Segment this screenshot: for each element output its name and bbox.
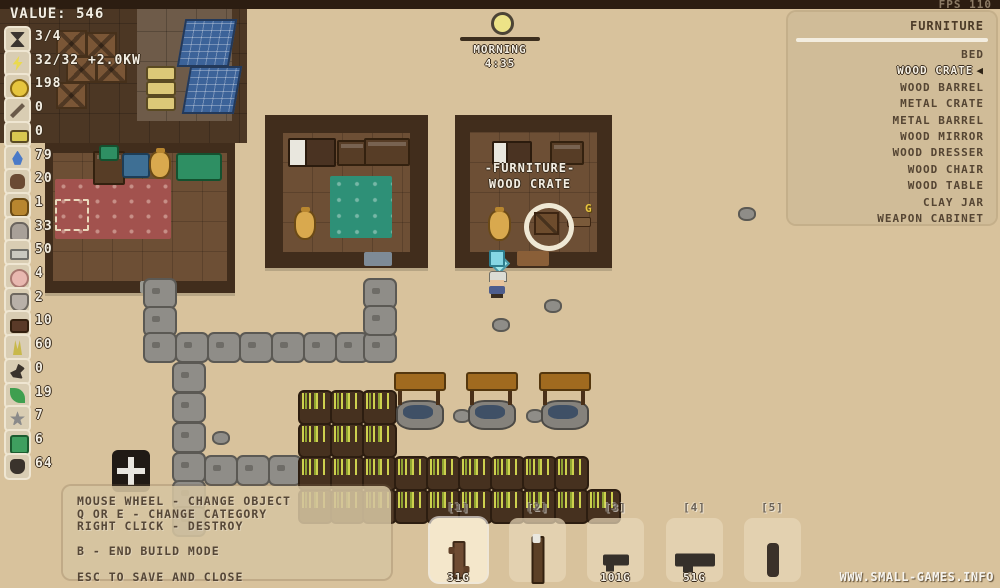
help-line: B - END BUILD MODE [77, 544, 220, 557]
door-mat[interactable] [517, 251, 549, 266]
build-menu-item[interactable]: METAL CRATE [794, 97, 984, 113]
crop-plot[interactable] [394, 489, 429, 524]
crop-plot[interactable] [458, 456, 493, 491]
build-menu-item[interactable]: WOOD TABLE [794, 179, 984, 195]
solar-panel[interactable] [177, 19, 237, 67]
hotbar-slot-key: [3] [587, 501, 644, 514]
resource-row: 4 [4, 263, 154, 287]
crop-plot[interactable] [330, 423, 365, 458]
bed-icon [10, 319, 29, 333]
door-mat[interactable] [364, 252, 392, 266]
battery-icon [10, 130, 29, 143]
menu-divider [796, 38, 988, 42]
stone-path-tile[interactable] [175, 332, 209, 363]
resource-value: 32/32 +2.0KW [35, 53, 141, 68]
resource-value: 3/4 [35, 29, 61, 44]
power-plug-icon [489, 250, 505, 267]
resource-row: 6 [4, 429, 154, 453]
build-menu-item-label: METAL BARREL [893, 114, 984, 127]
resource-row: 198 [4, 73, 154, 97]
hotbar-slot-3[interactable]: [3]101G [587, 518, 644, 582]
resource-row: 64 [4, 453, 154, 477]
wheat-icon [10, 340, 25, 355]
dresser[interactable] [364, 138, 410, 166]
hotbar-slot-2[interactable]: [2] [509, 518, 566, 582]
egg-icon [10, 269, 29, 288]
build-menu-item[interactable]: WEAPON CABINET [794, 212, 984, 228]
hotbar-slot-price: 51G [666, 571, 723, 584]
pebble [212, 431, 230, 445]
stone-path-tile[interactable] [207, 332, 241, 363]
time-period: MORNING [440, 43, 560, 56]
build-menu-item-label: WOOD TABLE [908, 179, 984, 192]
resource-value: 0 [35, 100, 44, 115]
build-menu-item-label: WOOD CHAIR [908, 163, 984, 176]
time-progress-line [460, 37, 540, 41]
build-menu-item[interactable]: METAL BARREL [794, 114, 984, 130]
stone-path-tile[interactable] [363, 332, 397, 363]
resource-value: 19 [35, 385, 53, 400]
help-line: MOUSE WHEEL - CHANGE OBJECT [77, 494, 291, 507]
stone-path-tile[interactable] [172, 422, 206, 453]
solar-panel[interactable] [182, 66, 242, 114]
dirt-icon [10, 174, 25, 189]
water-well[interactable] [541, 372, 589, 432]
build-menu-item[interactable]: WOOD DRESSER [794, 146, 984, 162]
crop-plot[interactable] [554, 456, 589, 491]
stone-icon [10, 222, 29, 241]
build-menu-item-label: WOOD BARREL [900, 81, 984, 94]
stone-path-tile[interactable] [303, 332, 337, 363]
hotbar-slot-1[interactable]: [1]31G [430, 518, 487, 582]
stone-path-tile[interactable] [236, 455, 270, 486]
bed[interactable] [288, 138, 336, 167]
build-menu-panel: FURNITURE BEDWOOD CRATE◀WOOD BARRELMETAL… [788, 12, 996, 224]
resource-row: 7 [4, 405, 154, 429]
stone-path-tile[interactable] [239, 332, 273, 363]
resource-value: 60 [35, 337, 53, 352]
crop-plot[interactable] [330, 390, 365, 425]
selector-arrow-icon: ◀ [976, 64, 984, 77]
build-menu-item-label: METAL CRATE [900, 97, 984, 110]
crop-plot[interactable] [298, 423, 333, 458]
top-bar [0, 0, 1000, 9]
stone-path-tile[interactable] [268, 455, 302, 486]
seed-box-icon [10, 435, 29, 454]
seed-bag-icon [10, 459, 25, 474]
metal-bar-icon [10, 249, 29, 260]
resource-row: 10 [4, 310, 154, 334]
crop-plot[interactable] [490, 456, 525, 491]
placement-label: -FURNITURE- WOOD CRATE [440, 160, 620, 192]
build-menu-item-label: BED [961, 48, 984, 61]
build-menu-item[interactable]: WOOD MIRROR [794, 130, 984, 146]
resource-value: 0 [35, 361, 44, 376]
flower-icon [10, 411, 25, 426]
sun-icon [491, 12, 514, 35]
water-well[interactable] [468, 372, 516, 432]
building-middle [265, 115, 428, 268]
help-line: ESC TO SAVE AND CLOSE [77, 570, 243, 583]
pistol-icon [603, 555, 629, 566]
build-help-panel: MOUSE WHEEL - CHANGE OBJECTQ OR E - CHAN… [63, 486, 391, 579]
build-menu-item[interactable]: BED [794, 48, 984, 64]
crop-plot[interactable] [426, 456, 461, 491]
build-menu-item[interactable]: WOOD CHAIR [794, 163, 984, 179]
build-menu-item[interactable]: CLAY JAR [794, 196, 984, 212]
resource-value: 64 [35, 456, 53, 471]
pebble [492, 318, 510, 332]
resource-icon-box [4, 453, 31, 480]
hotbar-slot-price: 31G [430, 571, 487, 584]
game-screen: G -FURNITURE- WOOD CRATE FPS 110 VALUE: … [0, 0, 1000, 588]
help-line: Q OR E - CHANGE CATEGORY [77, 507, 267, 520]
hotbar-slot-price: 101G [587, 571, 644, 584]
resource-row: 19 [4, 382, 154, 406]
water-well[interactable] [396, 372, 444, 432]
coin-icon [10, 79, 29, 98]
torch-icon [531, 536, 544, 584]
stone-path-tile[interactable] [172, 452, 206, 483]
time-clock: 4:35 [440, 57, 560, 70]
build-menu-item-label: WOOD DRESSER [893, 146, 984, 159]
hotbar-slot-key: [4] [666, 501, 723, 514]
resource-row: 79 [4, 145, 154, 169]
resource-value: 33 [35, 219, 53, 234]
help-line: RIGHT CLICK - DESTROY [77, 519, 243, 532]
resource-value: 2 [35, 290, 44, 305]
hotbar-slot-key: [2] [509, 501, 566, 514]
hotbar-slot-4[interactable]: [4]51G [666, 518, 723, 582]
resource-row: 0 [4, 97, 154, 121]
pot-icon [10, 293, 29, 312]
dresser[interactable] [337, 140, 367, 166]
resource-row: 20 [4, 168, 154, 192]
stone-path-tile[interactable] [271, 332, 305, 363]
build-menu-item[interactable]: WOOD BARREL [794, 81, 984, 97]
resource-value: 7 [35, 408, 44, 423]
resource-row: 1 [4, 192, 154, 216]
club-icon [767, 543, 779, 577]
resource-value: 198 [35, 76, 61, 91]
build-menu-item-label: WOOD CRATE [897, 64, 973, 77]
well-roof [394, 372, 446, 391]
resource-row: 3/4 [4, 26, 154, 50]
bird-icon [10, 364, 25, 379]
resource-row: 2 [4, 287, 154, 311]
wood-crate-placed[interactable] [534, 212, 559, 235]
well-water [403, 405, 433, 419]
clay-jar[interactable] [294, 210, 316, 240]
player-character [487, 271, 507, 298]
well-water [475, 405, 505, 419]
water-icon [10, 151, 25, 166]
pebble [544, 299, 562, 313]
build-menu-title: FURNITURE [910, 19, 984, 33]
hourglass-icon [10, 32, 25, 47]
pickaxe-icon [10, 103, 25, 118]
leaf-icon [10, 388, 25, 403]
hotbar-slot-key: [5] [744, 501, 801, 514]
resource-row: 60 [4, 334, 154, 358]
crop-plot[interactable] [522, 456, 557, 491]
resource-row: 0 [4, 358, 154, 382]
resource-value: 79 [35, 148, 53, 163]
clay-jar[interactable] [488, 210, 511, 241]
resource-value: 1 [35, 195, 44, 210]
watermark: WWW.SMALL-GAMES.INFO [840, 570, 995, 584]
well-roof [539, 372, 591, 391]
well-roof [466, 372, 518, 391]
crop-plot[interactable] [394, 456, 429, 491]
resource-value: 10 [35, 313, 53, 328]
fps-counter: FPS 110 [939, 0, 992, 11]
energy-icon [10, 56, 25, 71]
build-menu-item-label: WOOD MIRROR [900, 130, 984, 143]
resource-row: 50 [4, 239, 154, 263]
green-table[interactable] [176, 153, 222, 181]
crop-plot[interactable] [362, 390, 397, 425]
crop-plot[interactable] [298, 390, 333, 425]
placement-category: -FURNITURE- [440, 160, 620, 176]
resource-row: 33 [4, 216, 154, 240]
placement-item: WOOD CRATE [440, 176, 620, 192]
hotbar-slot-key: [1] [430, 501, 487, 514]
build-menu-item-label: CLAY JAR [923, 196, 984, 209]
coin-glyph: G [585, 202, 593, 215]
build-menu-item[interactable]: WOOD CRATE◀ [794, 64, 984, 80]
rifle-icon [675, 554, 715, 567]
build-menu-item-label: WEAPON CABINET [877, 212, 984, 225]
hotbar-slot-5[interactable]: [5] [744, 518, 801, 582]
resource-row: 0 [4, 121, 154, 145]
resource-value: 0 [35, 124, 44, 139]
stone-path-tile[interactable] [172, 392, 206, 423]
teal-carpet [330, 176, 392, 238]
well-water [548, 405, 578, 419]
pebble [738, 207, 756, 221]
stone-path-tile[interactable] [363, 305, 397, 336]
resource-row: 32/32 +2.0KW [4, 50, 154, 74]
stone-path-tile[interactable] [204, 455, 238, 486]
value-readout: VALUE: 546 [10, 6, 104, 22]
resource-value: 6 [35, 432, 44, 447]
crop-plot[interactable] [362, 423, 397, 458]
resource-value: 20 [35, 171, 53, 186]
resource-value: 50 [35, 242, 53, 257]
ore-icon [10, 198, 29, 217]
stone-path-tile[interactable] [172, 362, 206, 393]
resource-value: 4 [35, 266, 44, 281]
